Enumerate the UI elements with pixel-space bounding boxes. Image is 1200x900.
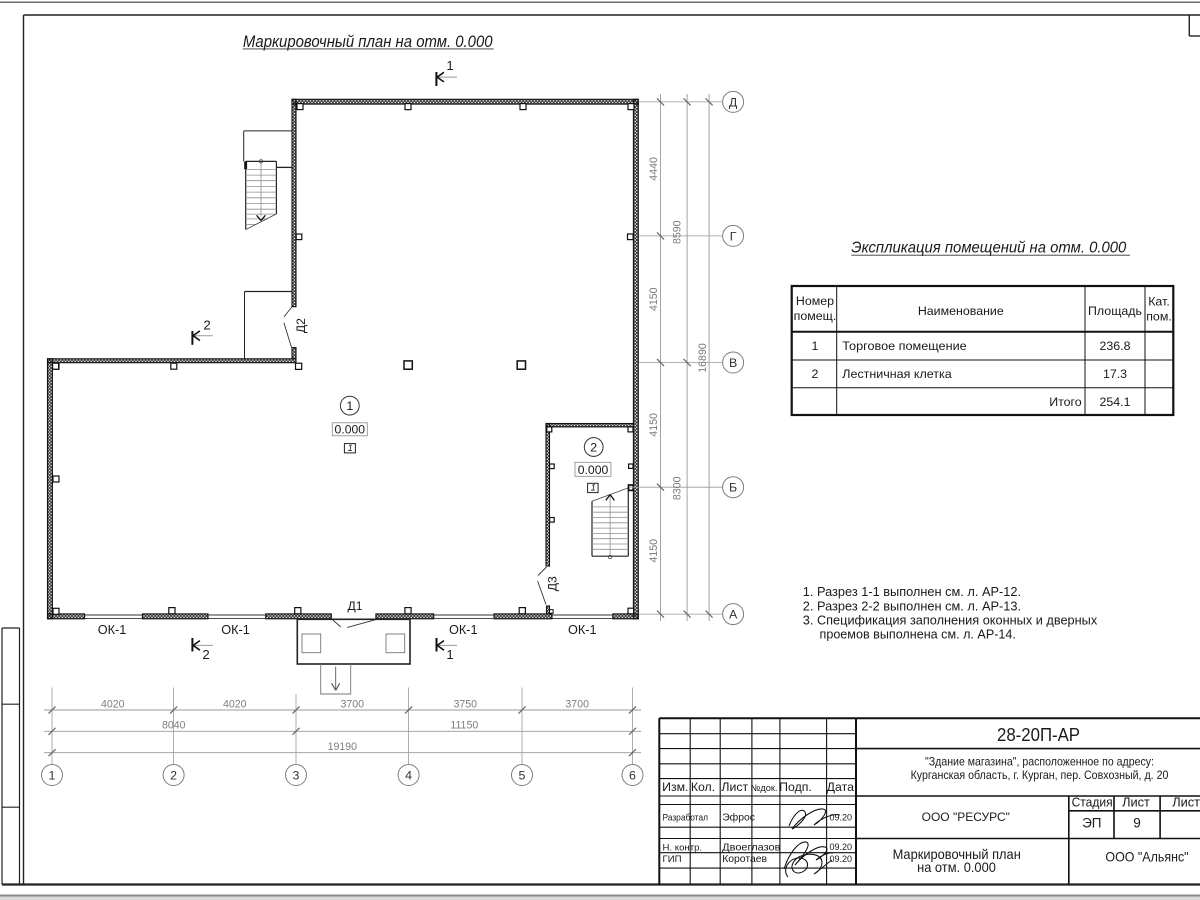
svg-text:0.000: 0.000 xyxy=(578,463,609,477)
svg-text:В: В xyxy=(729,356,737,370)
svg-text:Лист: Лист xyxy=(721,780,748,794)
svg-text:ОК-1: ОК-1 xyxy=(98,623,127,637)
svg-text:Подп.: Подп. xyxy=(779,780,812,794)
svg-text:2. Разрез 2-2 выполнен см. л.: 2. Разрез 2-2 выполнен см. л. АР-13. xyxy=(803,598,1021,613)
svg-text:Д: Д xyxy=(729,95,738,109)
svg-text:9: 9 xyxy=(1133,815,1141,830)
svg-text:2: 2 xyxy=(590,440,597,454)
svg-text:Дата: Дата xyxy=(827,780,854,794)
svg-text:1: 1 xyxy=(49,769,56,783)
svg-text:Изм.: Изм. xyxy=(662,780,688,794)
svg-text:8040: 8040 xyxy=(162,720,186,732)
svg-text:Номер: Номер xyxy=(796,294,834,308)
svg-text:11150: 11150 xyxy=(450,720,478,732)
svg-text:5: 5 xyxy=(519,769,526,783)
svg-text:1. Разрез 1-1 выполнен см. л.: 1. Разрез 1-1 выполнен см. л. АР-12. xyxy=(803,584,1021,599)
svg-text:3. Спецификация заполнения око: 3. Спецификация заполнения оконных и две… xyxy=(803,613,1098,628)
svg-text:Листов: Листов xyxy=(1172,795,1200,810)
svg-text:3: 3 xyxy=(293,769,300,783)
svg-text:1: 1 xyxy=(591,483,596,493)
svg-text:17.3: 17.3 xyxy=(1103,367,1127,381)
svg-text:2: 2 xyxy=(203,317,210,332)
svg-text:Д3: Д3 xyxy=(546,576,560,591)
svg-text:ОК-1: ОК-1 xyxy=(449,623,478,637)
svg-text:19190: 19190 xyxy=(328,741,358,753)
svg-text:4150: 4150 xyxy=(648,287,660,311)
svg-text:"Здание магазина", расположенн: "Здание магазина", расположенное по адре… xyxy=(925,755,1154,769)
svg-text:Курганская область, г. Курган,: Курганская область, г. Курган, пер. Совх… xyxy=(911,768,1169,782)
svg-text:3700: 3700 xyxy=(565,698,589,710)
svg-text:ГИП: ГИП xyxy=(663,854,682,865)
svg-text:Б: Б xyxy=(729,481,737,495)
svg-text:1: 1 xyxy=(348,443,353,453)
svg-text:Кат.: Кат. xyxy=(1148,295,1170,309)
svg-text:Н. контр.: Н. контр. xyxy=(663,842,703,853)
svg-text:1: 1 xyxy=(346,399,353,413)
svg-text:4020: 4020 xyxy=(101,698,125,710)
svg-text:на отм. 0.000: на отм. 0.000 xyxy=(917,860,996,875)
svg-text:Лестничная клетка: Лестничная клетка xyxy=(842,367,952,381)
svg-text:Маркировочный план на отм. 0.0: Маркировочный план на отм. 0.000 xyxy=(243,33,493,51)
svg-text:4020: 4020 xyxy=(223,698,247,710)
svg-text:09.20: 09.20 xyxy=(830,842,853,852)
svg-text:Лист: Лист xyxy=(1122,795,1150,810)
svg-text:254.1: 254.1 xyxy=(1099,395,1130,409)
svg-text:ЭП: ЭП xyxy=(1082,815,1101,830)
svg-text:Торговое помещение: Торговое помещение xyxy=(842,339,966,353)
svg-text:Площадь: Площадь xyxy=(1088,304,1142,318)
svg-text:09.20: 09.20 xyxy=(830,854,853,864)
svg-text:Д2: Д2 xyxy=(294,318,308,333)
svg-text:№док.: №док. xyxy=(751,783,778,793)
svg-text:Экспликация помещений на отм.: Экспликация помещений на отм. 0.000 xyxy=(851,240,1126,257)
svg-text:28-20П-АР: 28-20П-АР xyxy=(997,725,1080,745)
svg-text:Разработал: Разработал xyxy=(663,813,709,824)
svg-text:Д1: Д1 xyxy=(347,599,362,613)
svg-text:Итого: Итого xyxy=(1049,395,1082,409)
svg-text:ОК-1: ОК-1 xyxy=(221,623,250,637)
svg-text:Кол.: Кол. xyxy=(691,780,715,794)
svg-text:236.8: 236.8 xyxy=(1099,339,1130,353)
svg-text:Стадия: Стадия xyxy=(1072,795,1113,810)
svg-text:2: 2 xyxy=(202,647,209,662)
svg-text:4150: 4150 xyxy=(648,413,660,437)
svg-text:1: 1 xyxy=(446,58,453,73)
svg-text:ОК-1: ОК-1 xyxy=(568,623,597,637)
svg-text:ООО "РЕСУРС": ООО "РЕСУРС" xyxy=(922,810,1010,824)
svg-text:8590: 8590 xyxy=(672,220,684,244)
svg-text:09.20: 09.20 xyxy=(830,812,853,822)
svg-text:3750: 3750 xyxy=(454,698,478,710)
svg-text:Двоеглазов: Двоеглазов xyxy=(722,842,781,853)
svg-text:0.000: 0.000 xyxy=(335,422,366,436)
svg-text:Коротаев: Коротаев xyxy=(722,854,767,865)
svg-text:помещ.: помещ. xyxy=(794,309,837,323)
svg-text:8300: 8300 xyxy=(672,476,684,500)
svg-text:16890: 16890 xyxy=(697,343,709,373)
svg-text:Наименование: Наименование xyxy=(918,304,1004,318)
svg-text:6: 6 xyxy=(629,769,636,783)
svg-text:пом.: пом. xyxy=(1146,310,1172,324)
svg-text:4: 4 xyxy=(405,769,412,783)
svg-text:Г: Г xyxy=(730,229,737,243)
svg-text:А: А xyxy=(729,608,738,622)
svg-text:4150: 4150 xyxy=(648,539,660,563)
svg-text:ООО "Альянс": ООО "Альянс" xyxy=(1105,850,1188,865)
svg-text:3700: 3700 xyxy=(341,698,365,710)
svg-text:Эфрос: Эфрос xyxy=(722,812,755,824)
svg-text:1: 1 xyxy=(812,339,819,353)
svg-text:4440: 4440 xyxy=(648,157,660,181)
svg-text:2: 2 xyxy=(170,769,177,783)
svg-text:проемов выполнена см. л. АР-14: проемов выполнена см. л. АР-14. xyxy=(820,627,1016,642)
svg-text:2: 2 xyxy=(812,367,819,381)
svg-text:1: 1 xyxy=(446,647,453,662)
